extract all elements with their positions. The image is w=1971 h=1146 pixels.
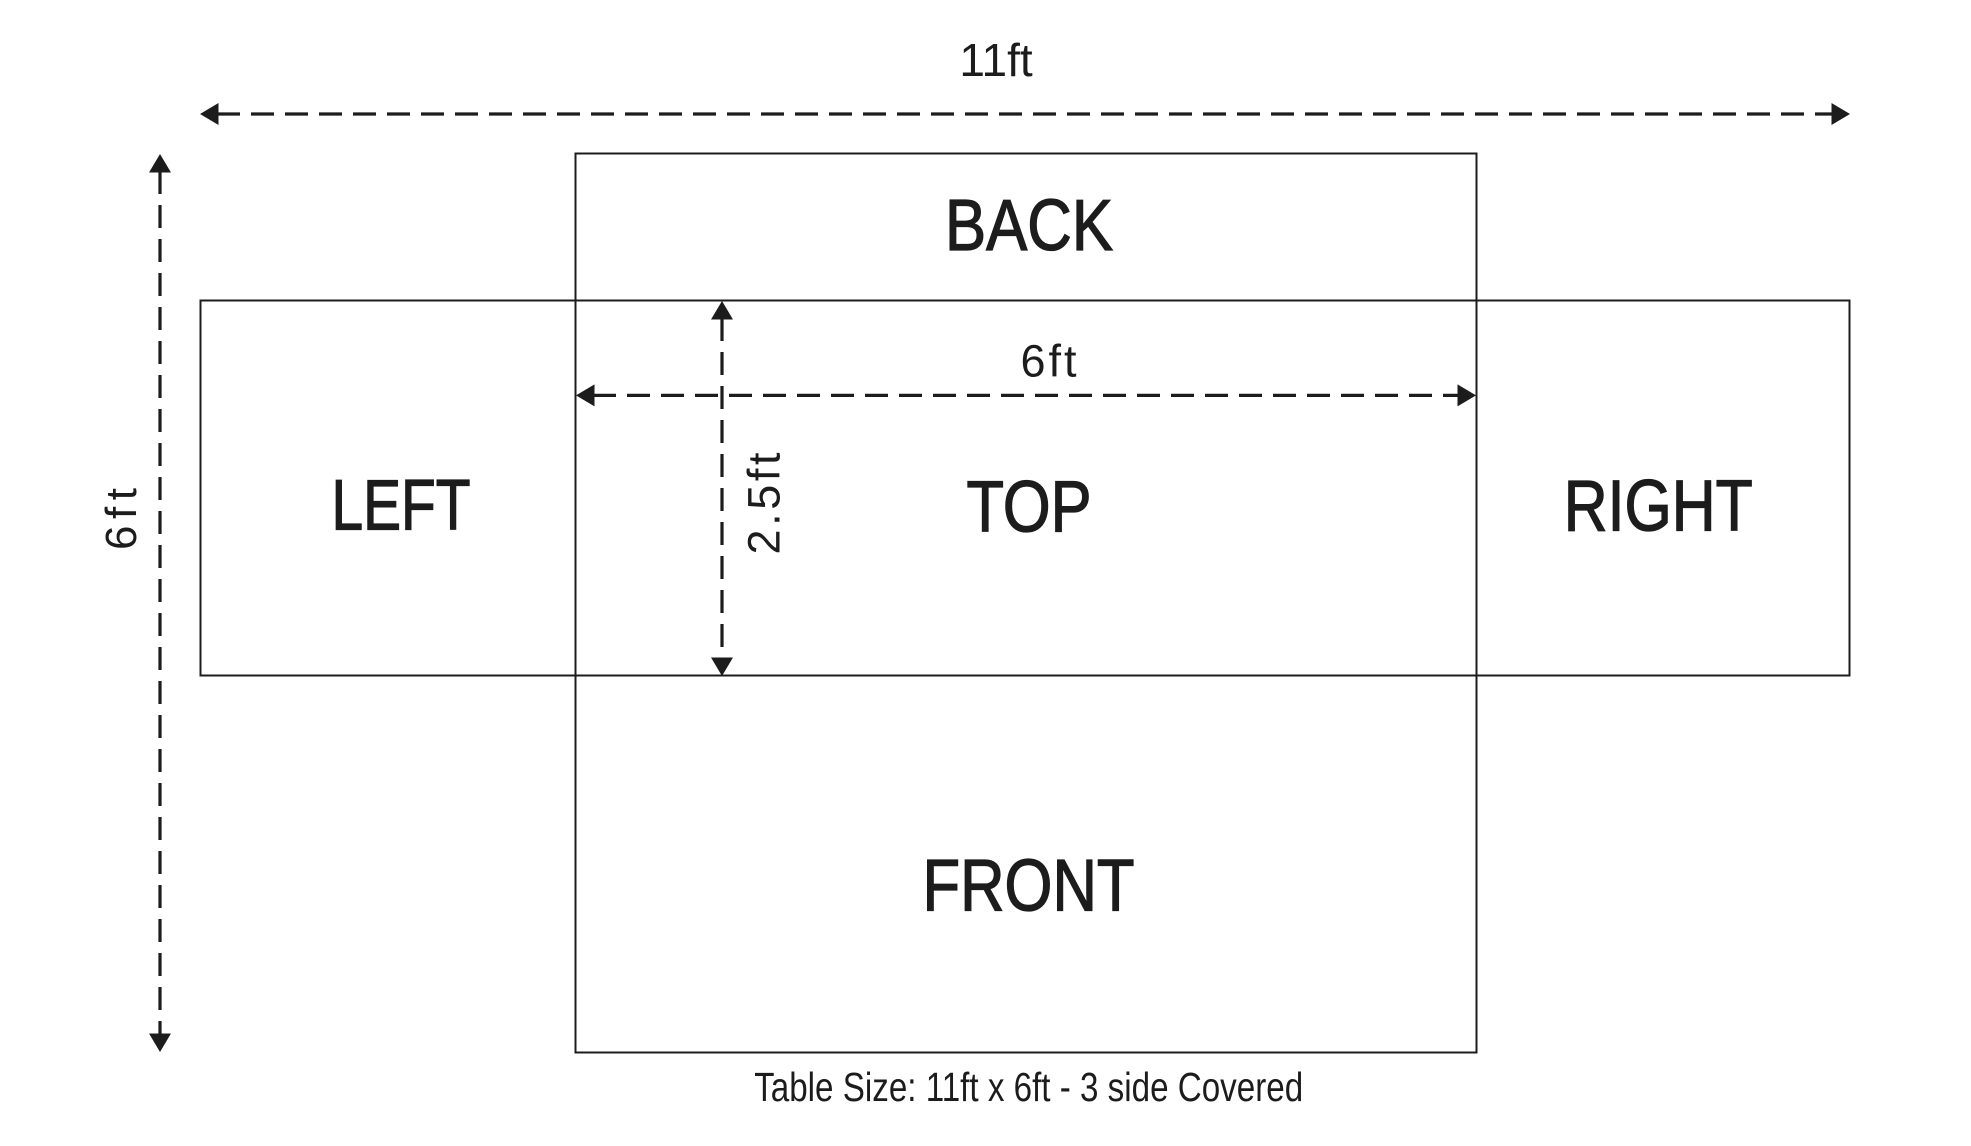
svg-text:6ft: 6ft [1021,336,1077,387]
svg-text:BACK: BACK [945,185,1113,266]
svg-text:6ft: 6ft [97,488,146,550]
svg-text:Table Size: 11ft x 6ft - 3 sid: Table Size: 11ft x 6ft - 3 side Covered [754,1064,1303,1110]
svg-text:RIGHT: RIGHT [1564,467,1753,547]
svg-text:FRONT: FRONT [923,846,1135,927]
svg-text:TOP: TOP [967,467,1092,547]
svg-text:11ft: 11ft [959,34,1033,86]
svg-text:LEFT: LEFT [332,467,471,546]
